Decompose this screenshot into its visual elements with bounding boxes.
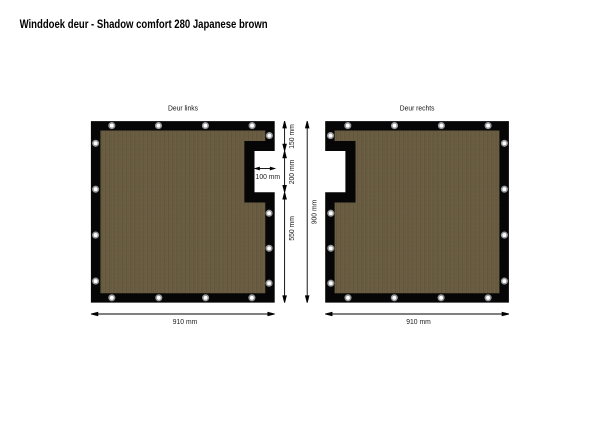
svg-text:910 mm: 910 mm xyxy=(406,319,431,326)
svg-text:900 mm: 900 mm xyxy=(312,200,319,225)
svg-text:Winddoek deur - Shadow comfort: Winddoek deur - Shadow comfort 280 Japan… xyxy=(20,17,268,31)
svg-text:Deur links: Deur links xyxy=(168,104,198,113)
svg-text:550 mm: 550 mm xyxy=(289,216,296,241)
svg-text:200 mm: 200 mm xyxy=(289,160,296,185)
svg-text:100 mm: 100 mm xyxy=(256,174,281,181)
svg-text:150 mm: 150 mm xyxy=(289,124,296,149)
svg-text:910 mm: 910 mm xyxy=(173,319,198,326)
svg-text:Deur rechts: Deur rechts xyxy=(400,104,435,113)
